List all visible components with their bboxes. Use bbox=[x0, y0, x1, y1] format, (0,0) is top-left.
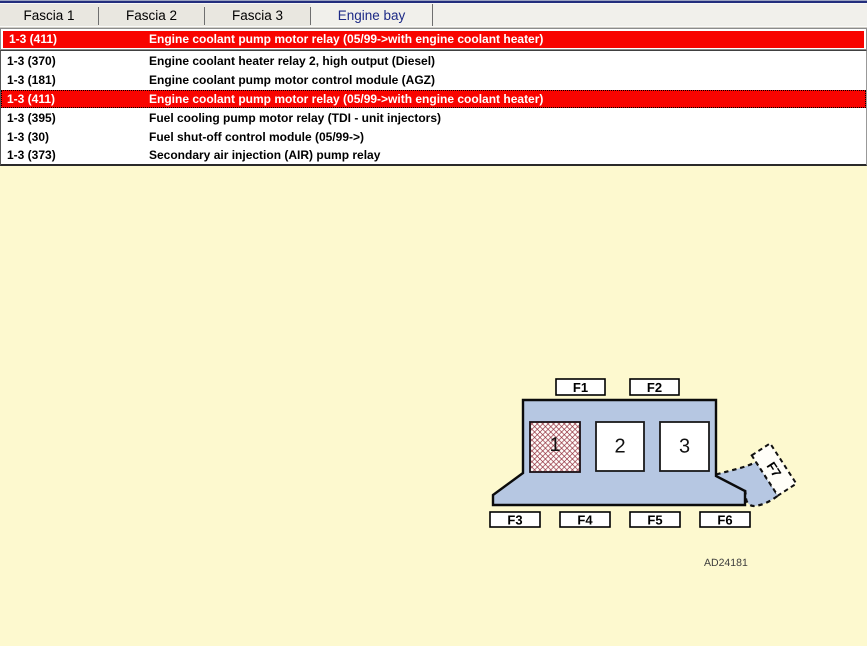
svg-text:2: 2 bbox=[614, 436, 625, 458]
svg-text:F4: F4 bbox=[577, 513, 593, 528]
svg-text:F3: F3 bbox=[507, 513, 522, 528]
svg-text:F6: F6 bbox=[717, 513, 732, 528]
svg-text:F1: F1 bbox=[573, 380, 588, 395]
svg-text:F5: F5 bbox=[647, 513, 662, 528]
svg-text:3: 3 bbox=[679, 436, 690, 458]
svg-text:F2: F2 bbox=[647, 380, 662, 395]
svg-text:1: 1 bbox=[549, 434, 560, 456]
svg-text:AD24181: AD24181 bbox=[704, 557, 748, 569]
